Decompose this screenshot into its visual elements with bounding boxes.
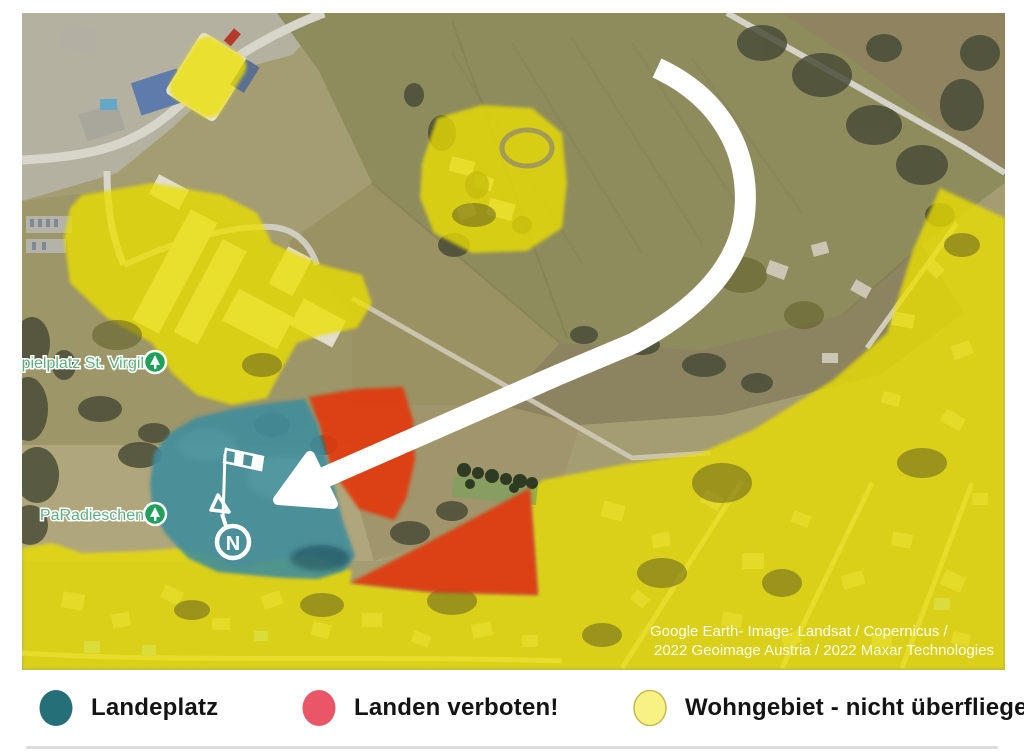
flight-zone-map-page: N Spielplatz St. Virgil PaRadieschen Goo… — [0, 0, 1024, 753]
attribution-line1: Google Earth- Image: Landsat / Copernicu… — [650, 623, 948, 640]
legend-label-landing: Landeplatz — [91, 694, 218, 722]
landing-swatch-icon — [38, 689, 74, 727]
forbidden-swatch-icon — [301, 689, 337, 727]
aerial-map-canvas: N Spielplatz St. Virgil PaRadieschen Goo… — [22, 13, 1005, 670]
park-pin-icon — [144, 503, 166, 525]
legend-label-residential: Wohngebiet - nicht überfliegen! — [685, 694, 1024, 722]
playground-label: Spielplatz St. Virgil — [22, 355, 144, 372]
north-label: N — [226, 533, 240, 555]
park-pin-icon — [144, 351, 166, 373]
legend-label-forbidden: Landen verboten! — [354, 694, 559, 722]
legend: Landeplatz Landen verboten! Wohngebiet -… — [0, 688, 1024, 732]
residential-swatch-icon — [632, 689, 668, 727]
aerial-map: N Spielplatz St. Virgil PaRadieschen Goo… — [22, 13, 1005, 670]
paradieschen-label: PaRadieschen — [40, 507, 144, 524]
residential-zone-farm — [420, 105, 567, 253]
legend-item-residential: Wohngebiet - nicht überfliegen! — [632, 688, 1024, 728]
legend-item-landing: Landeplatz — [38, 688, 218, 728]
attribution-line2: 2022 Geoimage Austria / 2022 Maxar Techn… — [654, 642, 994, 659]
page-bottom-edge — [26, 746, 998, 749]
legend-item-forbidden: Landen verboten! — [301, 688, 559, 728]
